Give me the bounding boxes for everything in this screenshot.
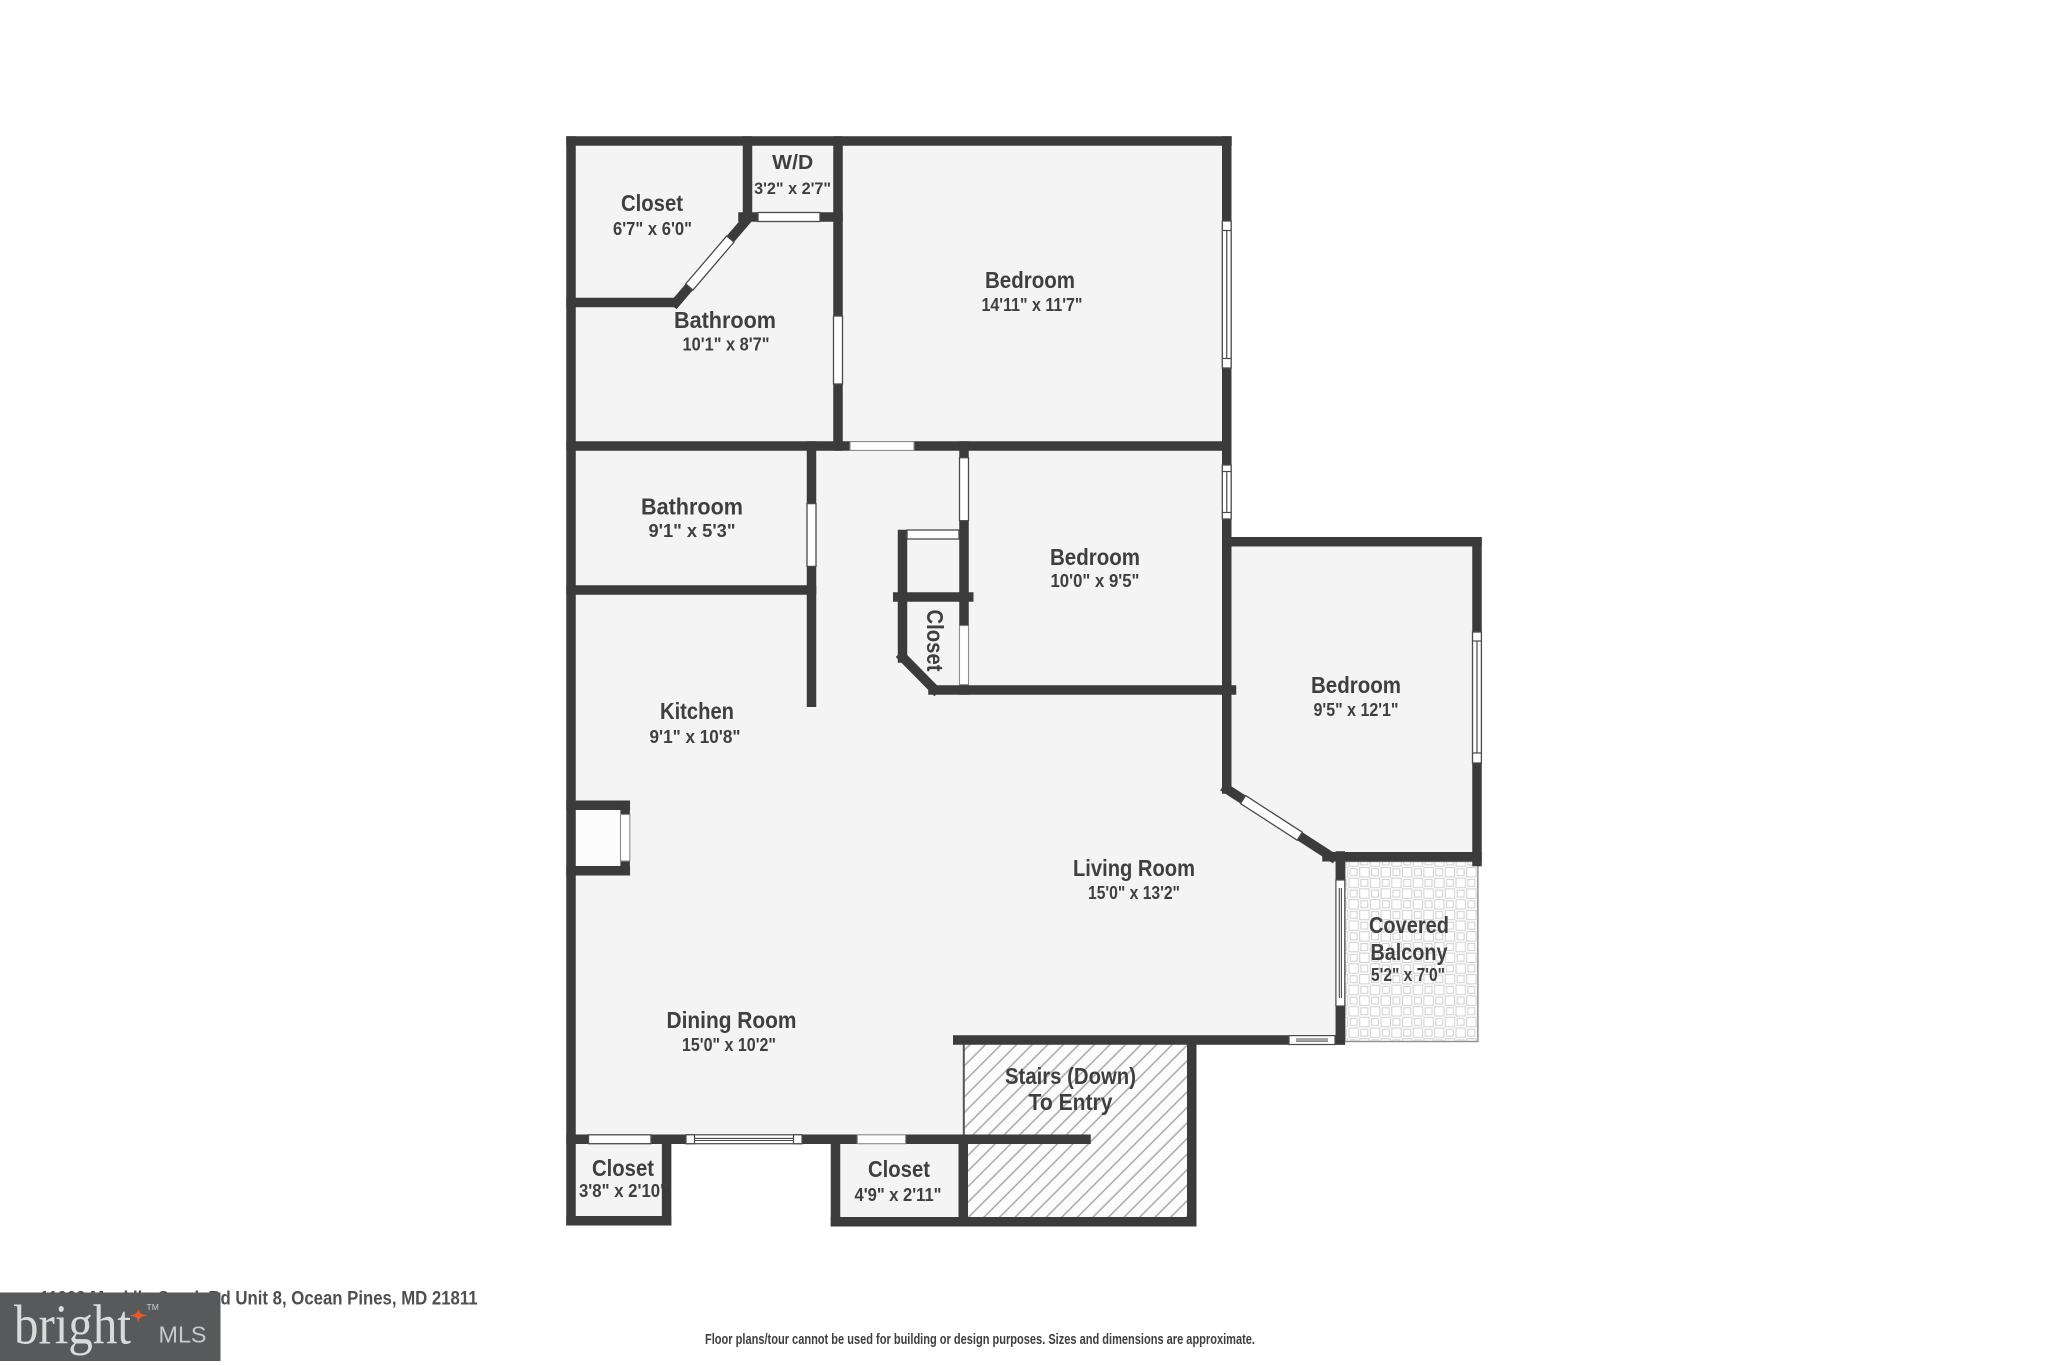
- svg-text:3'2" x 2'7": 3'2" x 2'7": [754, 180, 831, 198]
- svg-text:5'2" x 7'0": 5'2" x 7'0": [1371, 964, 1445, 985]
- svg-text:Bedroom: Bedroom: [985, 267, 1075, 293]
- svg-text:Bedroom: Bedroom: [1050, 544, 1140, 570]
- svg-text:Stairs (Down): Stairs (Down): [1005, 1063, 1136, 1089]
- svg-text:9'1" x 10'8": 9'1" x 10'8": [650, 726, 741, 747]
- svg-text:W/D: W/D: [772, 152, 813, 174]
- svg-text:Closet: Closet: [592, 1155, 654, 1181]
- svg-text:3'8" x 2'10": 3'8" x 2'10": [579, 1180, 668, 1201]
- svg-text:MLS: MLS: [159, 1322, 207, 1348]
- svg-text:10'1" x 8'7": 10'1" x 8'7": [683, 334, 770, 355]
- svg-text:Dining Room: Dining Room: [667, 1007, 797, 1033]
- svg-text:9'5" x 12'1": 9'5" x 12'1": [1314, 699, 1399, 720]
- svg-text:Kitchen: Kitchen: [660, 698, 734, 724]
- svg-text:Closet: Closet: [868, 1156, 930, 1182]
- svg-text:Floor plans/tour cannot be use: Floor plans/tour cannot be used for buil…: [705, 1331, 1255, 1348]
- svg-text:9'1" x 5'3": 9'1" x 5'3": [649, 520, 736, 541]
- svg-text:Closet: Closet: [621, 190, 683, 216]
- svg-text:bright: bright: [14, 1295, 131, 1357]
- svg-text:Bathroom: Bathroom: [641, 494, 743, 520]
- svg-text:Bedroom: Bedroom: [1311, 672, 1401, 698]
- svg-text:15'0" x 13'2": 15'0" x 13'2": [1088, 882, 1180, 903]
- svg-text:14'11" x 11'7": 14'11" x 11'7": [982, 294, 1083, 315]
- svg-text:TM: TM: [147, 1302, 159, 1312]
- svg-text:Closet: Closet: [922, 610, 948, 672]
- svg-text:15'0" x 10'2": 15'0" x 10'2": [682, 1034, 776, 1055]
- svg-text:6'7" x 6'0": 6'7" x 6'0": [613, 218, 692, 239]
- svg-text:To Entry: To Entry: [1029, 1089, 1113, 1115]
- svg-text:Bathroom: Bathroom: [674, 307, 776, 333]
- svg-text:Covered: Covered: [1369, 912, 1449, 938]
- svg-text:Balcony: Balcony: [1371, 939, 1448, 965]
- svg-text:4'9" x 2'11": 4'9" x 2'11": [855, 1184, 942, 1205]
- svg-text:Living Room: Living Room: [1073, 855, 1195, 881]
- svg-text:10'0" x 9'5": 10'0" x 9'5": [1051, 570, 1140, 591]
